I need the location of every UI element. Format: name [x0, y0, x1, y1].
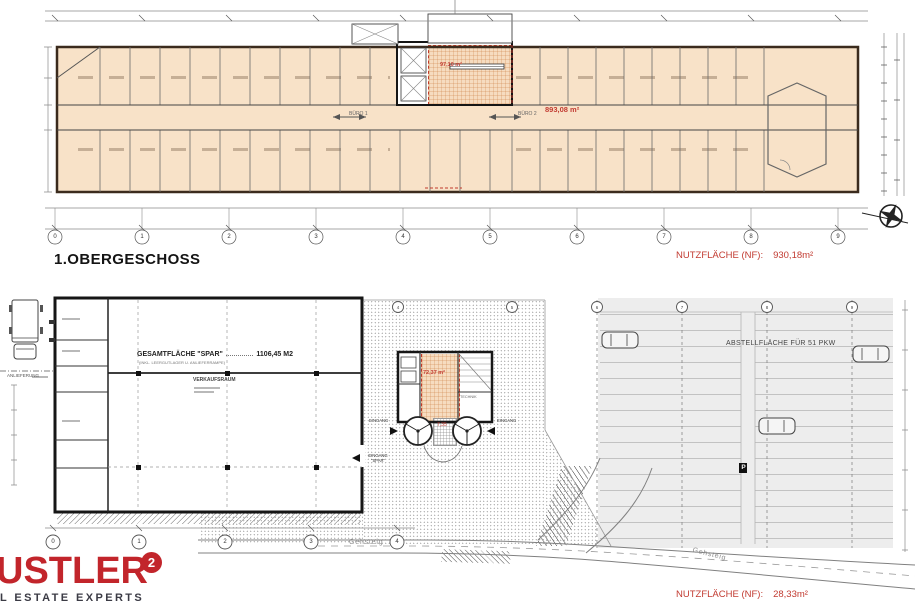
- entrance-stair-area: [421, 354, 460, 421]
- room-label-buero1: BÜRO 1: [349, 112, 368, 118]
- gehsteig-label: Gehsteig: [349, 539, 383, 547]
- logo-tagline: L ESTATE EXPERTS: [0, 592, 144, 604]
- dotted-leader: [226, 355, 254, 356]
- grid-axis-label: 1: [136, 234, 148, 241]
- grid-axis-label: 9: [832, 234, 844, 241]
- technik-label: TECHNIK: [460, 395, 477, 399]
- grid-axis-label: 6: [592, 305, 602, 310]
- illegible-text-bar: [194, 387, 220, 389]
- upper-plan-title: 1.OBERGESCHOSS: [54, 251, 200, 268]
- company-logo: USTLER 2 L ESTATE EXPERTS: [0, 548, 200, 610]
- logo-brand-text: USTLER: [0, 550, 148, 593]
- parking-stalls-right: [755, 314, 893, 544]
- grid-axis-label: 4: [397, 234, 409, 241]
- eingang-left-label: EINGANG: [369, 419, 388, 424]
- spar-total-note: (INKL. LEERGUTLAGER U. ANLIEFERRAMPE): [139, 361, 225, 366]
- grid-axis-label: 3: [310, 234, 322, 241]
- verkaufsraum-label: VERKAUFSRAUM: [193, 378, 236, 384]
- grid-axis-label: 9: [847, 305, 857, 310]
- room-label-texture: [78, 148, 390, 151]
- grid-axis-label: 2: [219, 539, 231, 546]
- core-area-value: 97,10 m²: [440, 62, 462, 68]
- grid-axis-label: 0: [47, 539, 59, 546]
- anlieferung-label: ANLIEFERUNG: [7, 373, 39, 378]
- eingang-spar-label: EINGANG "SPAR": [361, 453, 395, 464]
- grid-axis-label: 7: [677, 305, 687, 310]
- grid-axis-label: 5: [507, 305, 517, 310]
- logo-superscript-badge: 2: [141, 552, 162, 573]
- room-label-texture: [516, 76, 762, 79]
- illegible-text-bar: [194, 391, 214, 393]
- grid-axis-label: 4: [391, 539, 403, 546]
- buero2-area: 893,08 m²: [545, 106, 579, 115]
- upper-nf-value: 930,18m²: [773, 251, 813, 262]
- ground-nf-value: 28,33m²: [773, 590, 808, 601]
- delivery-truck-icon: [9, 300, 43, 359]
- illegible-text-bar: [62, 318, 80, 320]
- ground-nf-label: NUTZFLÄCHE (NF):: [676, 590, 763, 601]
- eingang-right-label: EINGANG: [497, 419, 516, 424]
- room-label-buero2: BÜRO 2: [518, 112, 537, 118]
- grid-axis-label: 3: [305, 539, 317, 546]
- grid-axis-label: 0: [49, 234, 61, 241]
- sidewalk-hatch: [57, 513, 361, 524]
- spar-total-value: 1106,45 M2: [256, 351, 293, 359]
- grid-axis-label: 8: [745, 234, 757, 241]
- room-label-texture: [78, 76, 390, 79]
- north-compass-icon: [862, 199, 908, 233]
- grid-axis-label: 2: [223, 234, 235, 241]
- upper-core-red-room: [428, 45, 512, 105]
- room-label-texture: [516, 148, 762, 151]
- illegible-text-bar: [62, 420, 80, 422]
- grid-axis-label: 7: [658, 234, 670, 241]
- grid-axis-label: 8: [762, 305, 772, 310]
- grid-axis-label: 5: [484, 234, 496, 241]
- grid-axis-label: 6: [571, 234, 583, 241]
- spar-total-label: GESAMTFLÄCHE "SPAR": [137, 351, 223, 359]
- parking-p-marker: P: [740, 464, 747, 471]
- upper-nf-label: NUTZFLÄCHE (NF):: [676, 251, 763, 262]
- mat-area: 7,35: [437, 423, 447, 429]
- entrance-core-area: 72,37 m²: [423, 370, 445, 376]
- illegible-text-bar: [62, 350, 80, 352]
- parking-label: ABSTELLFLÄCHE FÜR 51 PKW: [726, 340, 836, 348]
- traffic-island-hatch: [441, 546, 511, 567]
- grid-axis-label: 4: [393, 305, 403, 310]
- parking-stalls-left: [600, 314, 741, 544]
- grid-axis-label: 1: [133, 539, 145, 546]
- floor-plan-sheet: 1.OBERGESCHOSS NUTZFLÄCHE (NF): 930,18m²…: [0, 0, 915, 610]
